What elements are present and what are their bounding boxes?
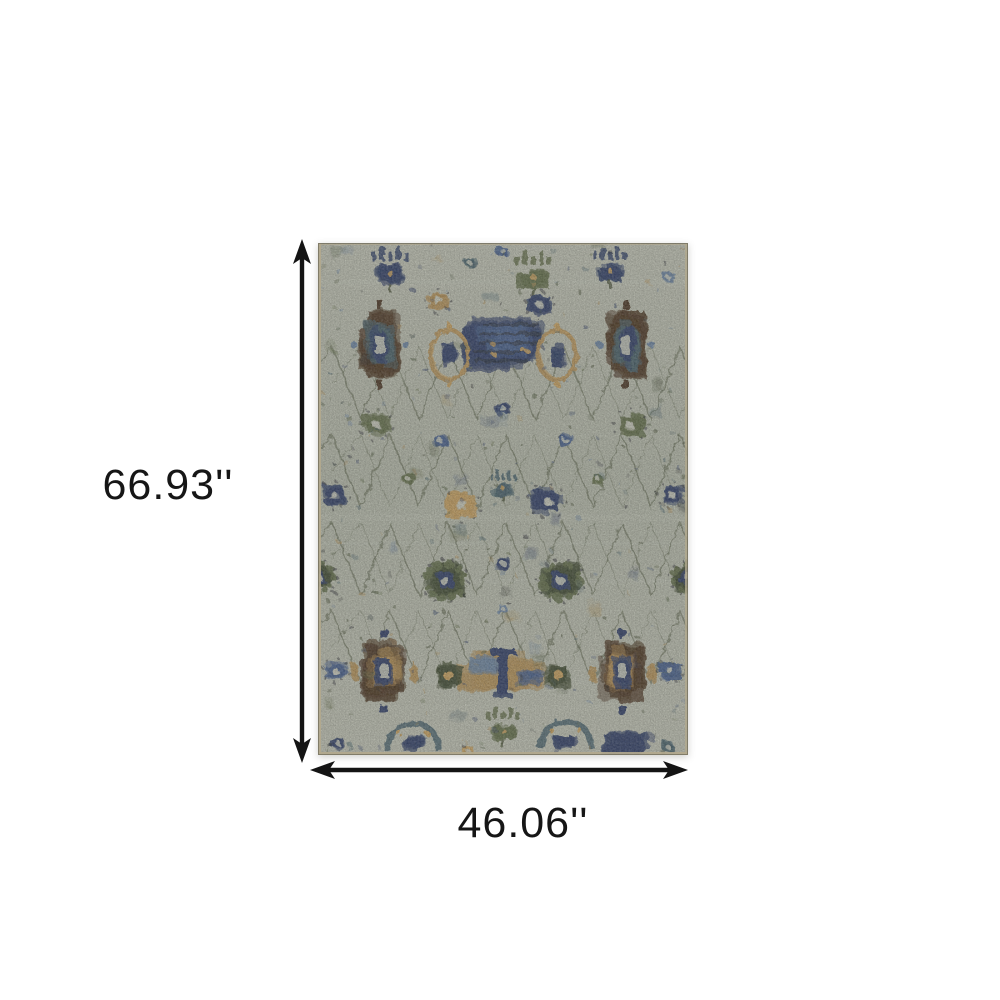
rug-image [318, 243, 688, 755]
height-dimension-label: 66.93'' [63, 462, 273, 509]
width-dimension-label: 46.06'' [418, 800, 628, 847]
width-dimension-arrow [310, 761, 688, 779]
product-dimension-diagram: 66.93'' 46.06'' [0, 0, 1000, 1000]
height-dimension-arrow [293, 239, 311, 763]
rug-pattern-graphic [318, 243, 688, 755]
